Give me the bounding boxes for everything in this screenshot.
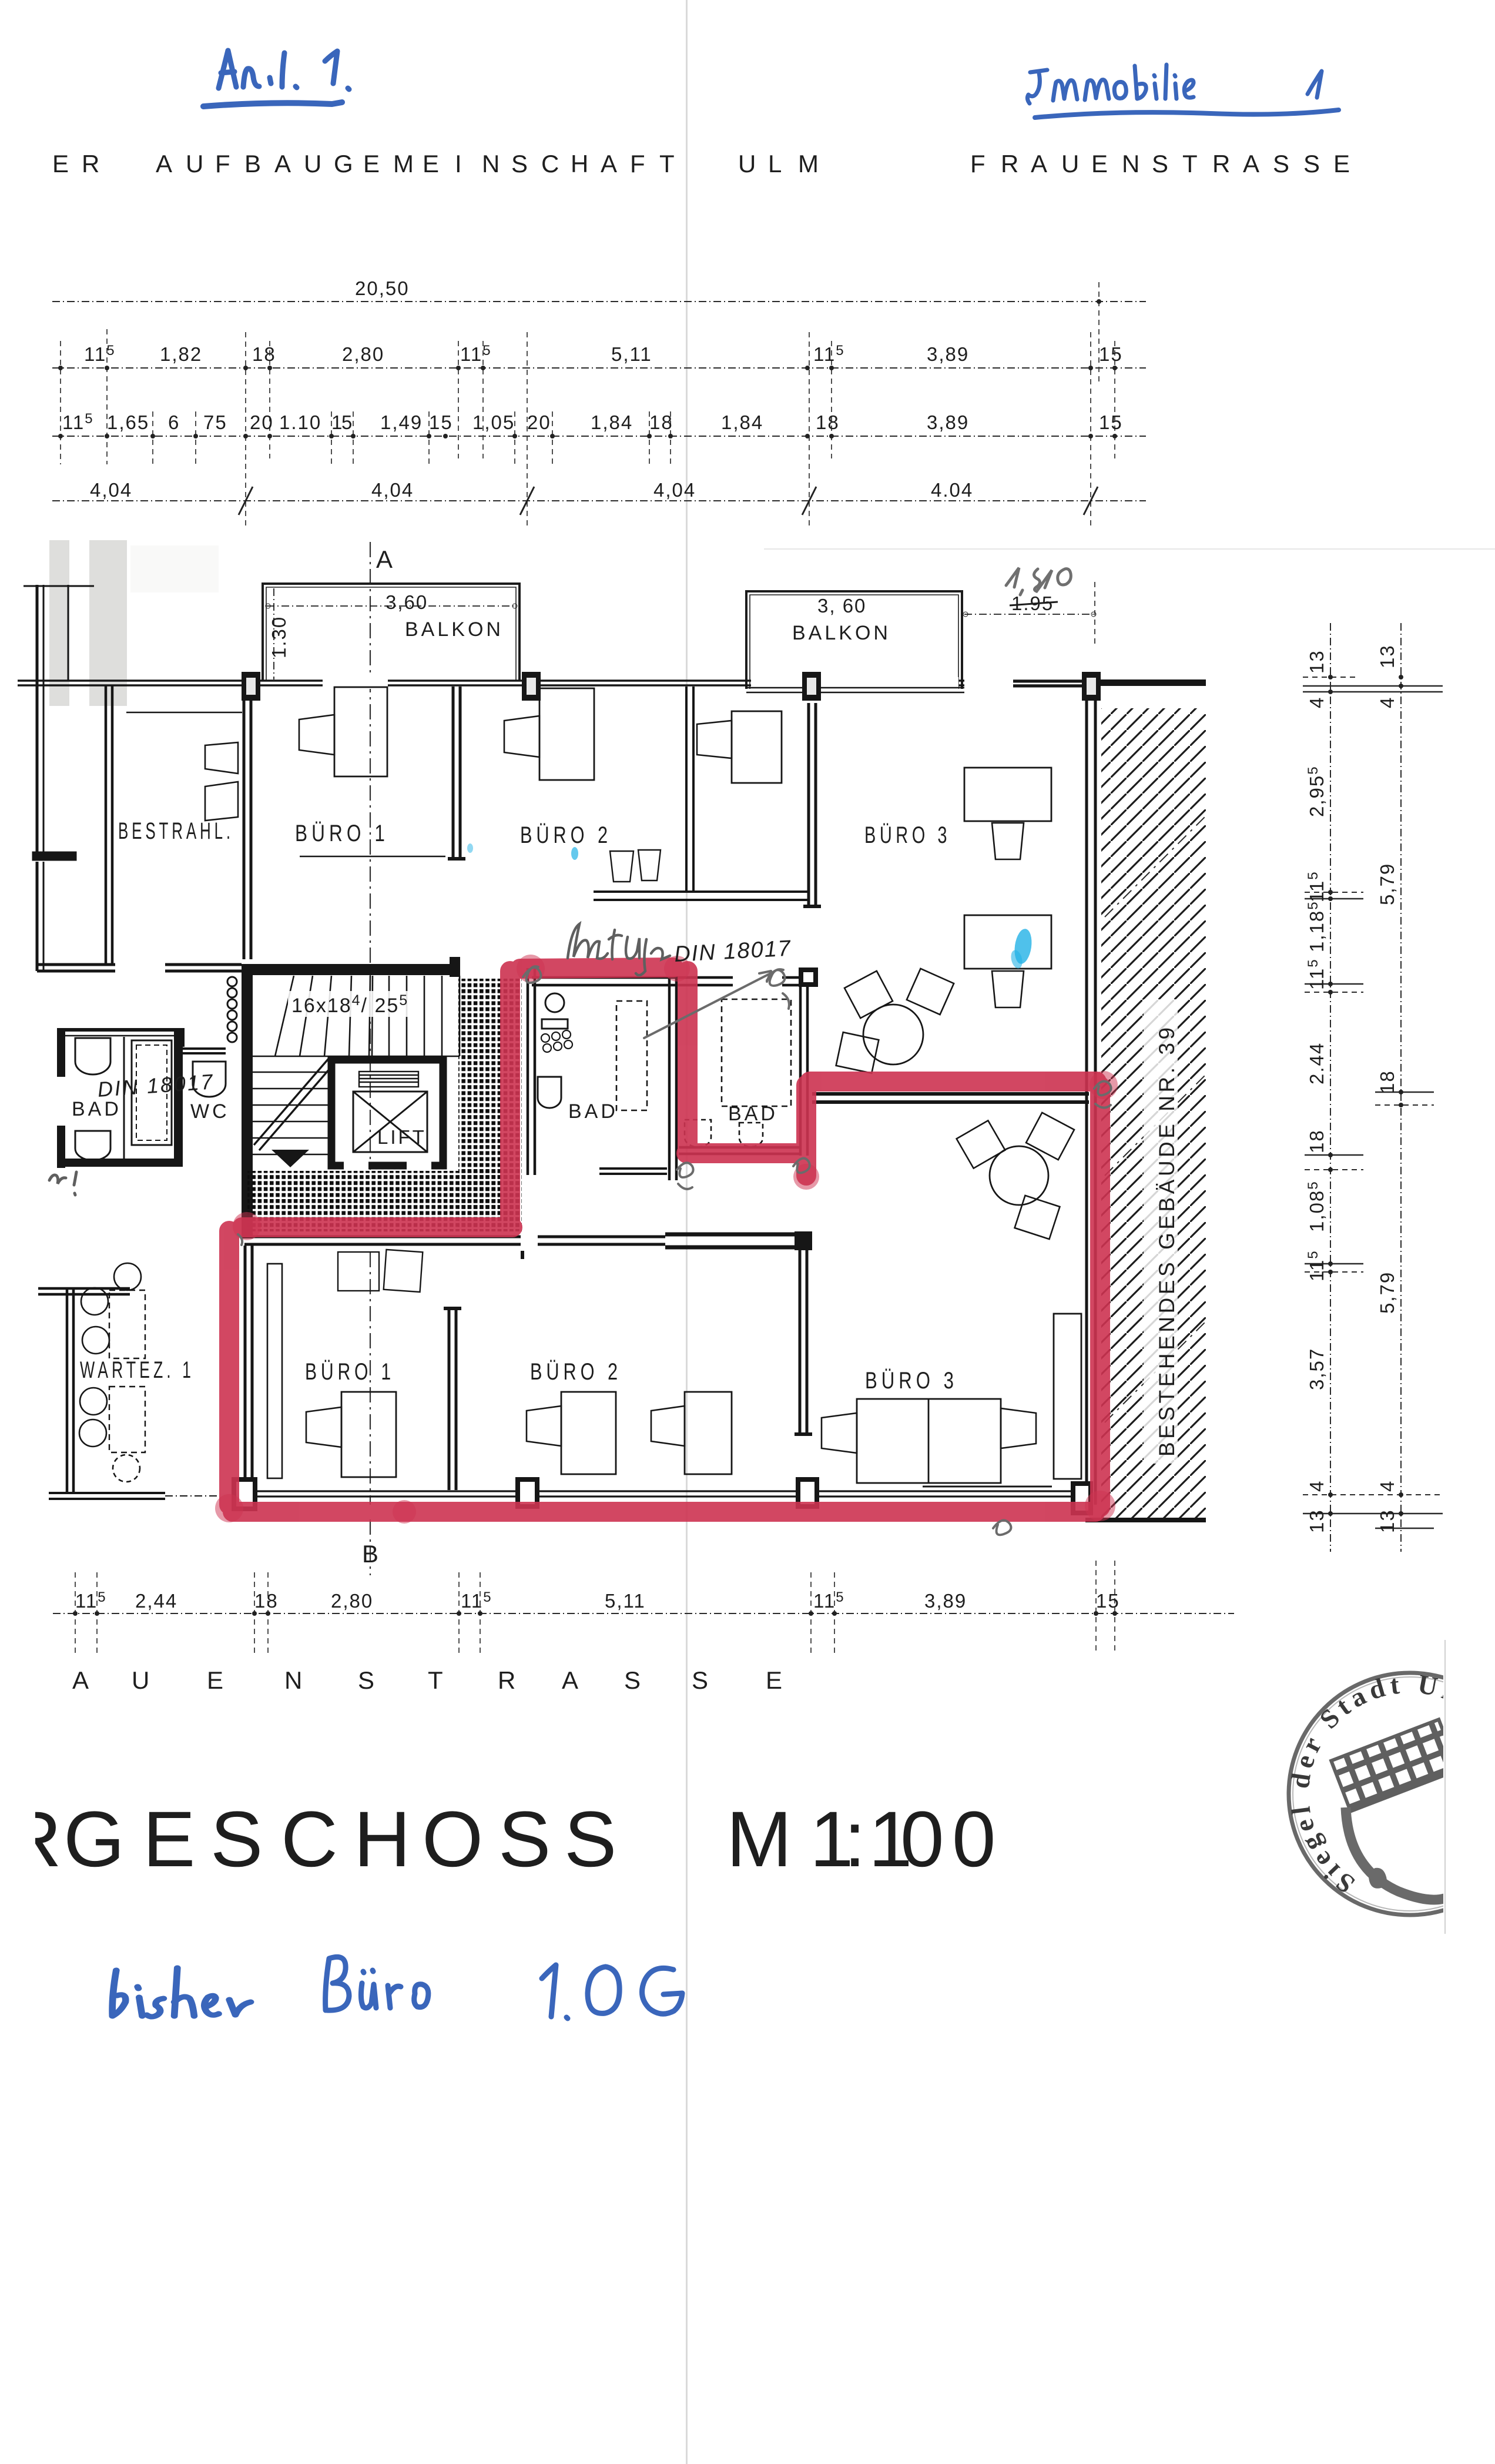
svg-text:BÜRO 1: BÜRO 1 bbox=[305, 1359, 395, 1385]
svg-text:13: 13 bbox=[1376, 1509, 1398, 1533]
svg-text:4: 4 bbox=[1376, 1480, 1398, 1492]
svg-text:4: 4 bbox=[1306, 1480, 1328, 1492]
svg-text:4,04: 4,04 bbox=[90, 479, 132, 501]
svg-text:75: 75 bbox=[203, 411, 227, 433]
svg-text:WARTEZ. 1: WARTEZ. 1 bbox=[80, 1357, 195, 1383]
svg-text:1,82: 1,82 bbox=[160, 343, 202, 365]
svg-text:2,44: 2,44 bbox=[135, 1590, 177, 1612]
svg-text:16x184/ 255: 16x184/ 255 bbox=[291, 992, 408, 1017]
svg-text:BALKON: BALKON bbox=[792, 622, 891, 644]
svg-text:BAD: BAD bbox=[568, 1100, 618, 1123]
svg-text:BÜRO 2: BÜRO 2 bbox=[520, 822, 612, 848]
svg-text:BÜRO 1: BÜRO 1 bbox=[295, 821, 389, 846]
svg-text:4: 4 bbox=[1376, 697, 1398, 708]
svg-text:3, 60: 3, 60 bbox=[817, 595, 866, 617]
svg-text:5,11: 5,11 bbox=[605, 1590, 646, 1612]
svg-text:20,50: 20,50 bbox=[355, 277, 410, 299]
svg-text:3,89: 3,89 bbox=[924, 1590, 967, 1612]
svg-text:1,05: 1,05 bbox=[472, 411, 515, 433]
svg-text:4,04: 4,04 bbox=[371, 479, 414, 501]
svg-text:BÜRO 2: BÜRO 2 bbox=[530, 1359, 622, 1385]
svg-text:WC: WC bbox=[190, 1100, 230, 1123]
svg-text:15: 15 bbox=[1099, 411, 1123, 433]
svg-text:13: 13 bbox=[1306, 1509, 1328, 1533]
svg-text:18: 18 bbox=[254, 1590, 279, 1612]
svg-text:1,65: 1,65 bbox=[107, 411, 149, 433]
svg-text:1,84: 1,84 bbox=[591, 411, 633, 433]
svg-text:BESTRAHL.: BESTRAHL. bbox=[118, 818, 234, 844]
svg-text:18: 18 bbox=[649, 411, 673, 433]
svg-text:15: 15 bbox=[1096, 1590, 1120, 1612]
svg-text:5,11: 5,11 bbox=[611, 343, 652, 365]
svg-text:BÜRO 3: BÜRO 3 bbox=[865, 1368, 958, 1394]
svg-text:BÜRO 3: BÜRO 3 bbox=[864, 822, 951, 848]
svg-text:5,79: 5,79 bbox=[1376, 1271, 1398, 1314]
svg-text:3,57: 3,57 bbox=[1306, 1348, 1328, 1390]
svg-text:18: 18 bbox=[816, 411, 840, 433]
svg-text:4,04: 4,04 bbox=[653, 479, 696, 501]
svg-text:1,49: 1,49 bbox=[380, 411, 423, 433]
svg-text:LIFT: LIFT bbox=[377, 1126, 427, 1148]
svg-text:18: 18 bbox=[252, 343, 276, 365]
svg-text:6: 6 bbox=[168, 411, 180, 433]
svg-text:20: 20 bbox=[250, 411, 274, 433]
svg-text:2,80: 2,80 bbox=[342, 343, 384, 365]
svg-text:4: 4 bbox=[1306, 697, 1328, 708]
svg-text:2,80: 2,80 bbox=[331, 1590, 373, 1612]
svg-text:3,89: 3,89 bbox=[927, 411, 969, 433]
svg-text:18: 18 bbox=[1306, 1129, 1328, 1153]
svg-text:1.95: 1.95 bbox=[1011, 592, 1054, 614]
svg-text:20: 20 bbox=[527, 411, 551, 433]
svg-text:B: B bbox=[362, 1540, 378, 1568]
svg-text:13: 13 bbox=[1306, 650, 1328, 674]
svg-text:BAD: BAD bbox=[72, 1098, 122, 1120]
svg-text:BALKON: BALKON bbox=[405, 618, 504, 641]
svg-text:13: 13 bbox=[1376, 644, 1398, 668]
svg-text:18: 18 bbox=[1376, 1070, 1398, 1094]
svg-text:15: 15 bbox=[1099, 343, 1123, 365]
svg-text:5: 5 bbox=[341, 411, 353, 433]
svg-text:A: A bbox=[376, 545, 393, 573]
svg-text:3,60: 3,60 bbox=[386, 591, 428, 613]
svg-text:BAD: BAD bbox=[728, 1103, 778, 1125]
svg-text:1.30: 1.30 bbox=[268, 616, 290, 658]
svg-text:1.10: 1.10 bbox=[279, 411, 321, 433]
svg-text:3,89: 3,89 bbox=[927, 343, 969, 365]
svg-text:BESTEHENDES GEBÄUDE NR. 39: BESTEHENDES GEBÄUDE NR. 39 bbox=[1155, 1022, 1179, 1457]
svg-text:1,84: 1,84 bbox=[721, 411, 763, 433]
svg-text:5,79: 5,79 bbox=[1376, 863, 1398, 905]
svg-text:4.04: 4.04 bbox=[931, 479, 973, 501]
svg-text:M1:100: M1:100 bbox=[726, 1796, 996, 1883]
svg-text:15: 15 bbox=[429, 411, 453, 433]
svg-text:2.44: 2.44 bbox=[1306, 1042, 1328, 1084]
